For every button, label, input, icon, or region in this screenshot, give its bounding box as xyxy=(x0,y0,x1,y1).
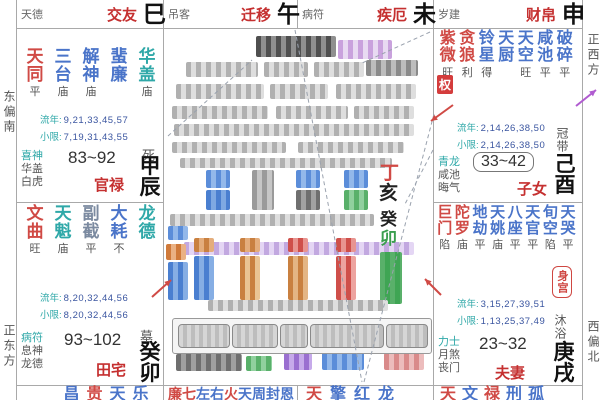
clipped-star-char: 龙 xyxy=(374,385,398,400)
liunian-values: 9,21,33,45,57 xyxy=(64,115,129,126)
star-三台: 三台庙 xyxy=(49,48,77,99)
star-天魁: 天魁庙 xyxy=(49,205,77,256)
palace-name: 子女 xyxy=(517,178,547,199)
star-天官: 天官平 xyxy=(524,205,542,252)
clipped-star-char: 贵 xyxy=(83,385,106,400)
grid-line xyxy=(163,0,164,400)
star-龙德: 龙德 xyxy=(133,205,161,256)
pillar-char: 丁 xyxy=(380,164,399,183)
star-list: 巨门陷陀罗庙地劫平天姚庙八座平天官平旬空陷天哭平 xyxy=(433,202,578,252)
star-旬空: 旬空陷 xyxy=(542,205,560,252)
redacted-block xyxy=(186,62,258,77)
decade-range: 93~102 xyxy=(64,330,121,350)
redacted-block xyxy=(166,244,186,260)
decade-range: 83~92 xyxy=(68,148,116,168)
redacted-block xyxy=(246,356,272,371)
clipped-star-char: 昌 xyxy=(60,385,83,400)
palace-footer-si-jiaoyou[interactable]: 天德 交友 巳 xyxy=(16,0,169,28)
ziwei-chart: 东偏南 正东方 正西方 西偏北 天德 交友 巳 吊客 迁移 午 病符 疾厄 未 … xyxy=(0,0,600,400)
palace-top-hai[interactable]: 天文禄刑孤 xyxy=(433,385,582,400)
xiaoxian-values: 1,13,25,37,49 xyxy=(481,316,546,327)
liunian-label: 流年: xyxy=(457,299,479,310)
liunian-values: 2,14,26,38,50 xyxy=(481,123,546,134)
clipped-star-char: 红 xyxy=(350,385,374,400)
toolbar-button-redacted[interactable] xyxy=(178,324,230,348)
clipped-star-char: 廉 xyxy=(168,385,182,400)
decade-range-current[interactable]: 33~42 xyxy=(473,152,534,172)
suijian-star: 病符 xyxy=(300,6,377,22)
liunian-label: 流年: xyxy=(40,293,62,304)
redacted-block xyxy=(256,36,336,57)
star-list: 天同平三台庙解神庙蜚廉华盖庙 xyxy=(16,28,163,99)
center-toolbar xyxy=(172,318,432,354)
xiaoxian-values: 8,20,32,44,56 xyxy=(64,310,129,321)
compass-west-north: 西偏北 xyxy=(585,320,600,365)
xiaoxian-label: 小限: xyxy=(457,316,479,327)
clipped-star-char: 文 xyxy=(459,385,481,400)
stem-branch: 庚戌 xyxy=(552,342,576,384)
redacted-block xyxy=(338,40,392,59)
redacted-block xyxy=(288,238,308,252)
palace-guanlu-jiachen[interactable]: 天同平三台庙解神庙蜚廉华盖庙 流年:9,21,33,45,57 小限:7,19,… xyxy=(16,28,163,202)
redacted-block xyxy=(276,106,348,119)
liunian-label: 流年: xyxy=(457,123,479,134)
redacted-block xyxy=(168,262,188,300)
clipped-star-char: 右 xyxy=(210,385,224,400)
shensha-list: 喜神 华盖 白虎 xyxy=(21,150,43,189)
grid-line xyxy=(582,0,583,400)
changsheng-stage: 冠带 xyxy=(554,127,571,153)
clipped-star-char: 乐 xyxy=(129,385,152,400)
redacted-block xyxy=(174,124,414,136)
clipped-star-char: 天 xyxy=(106,385,129,400)
pillar-char: 癸 xyxy=(380,211,397,228)
palace-footer-shen-caibo[interactable]: 岁建 财帛 申 xyxy=(433,0,598,28)
xiaoxian-values: 2,14,26,38,50 xyxy=(481,140,546,151)
clipped-star-char: 天 xyxy=(302,385,326,400)
clipped-star-char: 七 xyxy=(182,385,196,400)
redacted-block xyxy=(344,190,368,210)
clipped-star-char: 火 xyxy=(224,385,238,400)
star-贪狼: 贪狼利 xyxy=(458,31,478,80)
suijian-star: 天德 xyxy=(19,6,107,22)
redacted-block xyxy=(180,158,392,168)
liunian-label: 流年: xyxy=(40,115,62,126)
redacted-block xyxy=(354,106,414,119)
palace-name: 官禄 xyxy=(94,174,124,195)
redacted-block xyxy=(336,238,356,252)
star-八座: 八座平 xyxy=(506,205,524,252)
redacted-block xyxy=(314,62,364,77)
shensha-list: 青龙 咸池 晦气 xyxy=(438,156,460,195)
star-地劫: 地劫平 xyxy=(471,205,489,252)
palace-name: 迁移 xyxy=(241,4,271,25)
redacted-block xyxy=(168,226,188,240)
pillar-char: 亥 xyxy=(379,184,398,203)
toolbar-button-redacted[interactable] xyxy=(310,324,384,348)
hua-quan-badge: 权 xyxy=(437,75,453,94)
yearly-lines: 流年:3,15,27,39,51 小限:1,13,25,37,49 xyxy=(457,296,545,330)
redacted-block xyxy=(194,238,214,252)
redacted-block xyxy=(344,170,368,188)
star-天同: 天同平 xyxy=(21,48,49,99)
redacted-block xyxy=(172,106,268,119)
star-蜚廉: 蜚廉 xyxy=(105,48,133,99)
redacted-block xyxy=(176,84,264,99)
palace-name: 田宅 xyxy=(96,359,126,380)
palace-top-zi[interactable]: 天擎红龙 xyxy=(297,385,438,400)
star-天姚: 天姚庙 xyxy=(489,205,507,252)
star-咸池: 咸池平 xyxy=(536,31,556,80)
redacted-block xyxy=(170,214,374,226)
clipped-star-char: 孤 xyxy=(525,385,547,400)
changsheng-stage: 沐浴 xyxy=(552,314,569,340)
yearly-lines: 流年:9,21,33,45,57 小限:7,19,31,43,55 xyxy=(40,112,128,146)
liunian-values: 3,15,27,39,51 xyxy=(481,299,546,310)
clipped-star-char: 禄 xyxy=(481,385,503,400)
redacted-block xyxy=(298,142,404,153)
palace-name: 财帛 xyxy=(526,4,556,25)
star-华盖: 华盖庙 xyxy=(133,48,161,99)
yearly-lines: 流年:2,14,26,38,50 小限:2,14,26,38,50 xyxy=(457,120,545,154)
shensha-list: 病符 息神 龙德 xyxy=(21,332,43,371)
redacted-block xyxy=(176,354,242,371)
branch-label: 申 xyxy=(562,1,585,27)
shensha-list: 力士 月煞 丧门 xyxy=(438,336,460,375)
star-文曲: 文曲旺 xyxy=(21,205,49,256)
stem-branch: 甲辰 xyxy=(138,156,162,198)
redacted-block xyxy=(206,170,230,188)
redacted-block xyxy=(206,190,230,210)
liunian-values: 8,20,32,44,56 xyxy=(64,293,129,304)
clipped-star-char: 刑 xyxy=(503,385,525,400)
star-list: 紫微旺贪狼利铃星得天厨天空旺咸池平破碎平 xyxy=(433,28,578,80)
stem-branch: 癸卯 xyxy=(138,342,162,384)
palace-tianzhai-guimao[interactable]: 文曲旺天魁庙副截平大耗不龙德 流年:8,20,32,44,56 小限:8,20,… xyxy=(16,202,163,385)
xiaoxian-label: 小限: xyxy=(40,310,62,321)
compass-due-west: 正西方 xyxy=(585,33,600,78)
redacted-block xyxy=(270,84,328,99)
star-副截: 副截平 xyxy=(77,205,105,256)
palace-name: 夫妻 xyxy=(495,362,525,383)
star-list: 文曲旺天魁庙副截平大耗不龙德 xyxy=(16,202,163,256)
palace-footer-wu-qianyi[interactable]: 吊客 迁移 午 xyxy=(163,0,303,28)
redacted-block xyxy=(284,353,312,370)
palace-top-chou[interactable]: 廉七左右火天周封恩 xyxy=(163,385,302,400)
suijian-star: 岁建 xyxy=(436,6,526,22)
yearly-lines: 流年:8,20,32,44,56 小限:8,20,32,44,56 xyxy=(40,290,128,324)
clipped-star-char: 恩 xyxy=(280,385,294,400)
redacted-block xyxy=(296,170,320,188)
decade-range: 23~32 xyxy=(479,334,527,354)
xiaoxian-label: 小限: xyxy=(40,132,62,143)
star-巨门: 巨门陷 xyxy=(436,205,454,252)
xiaoxian-label: 小限: xyxy=(457,140,479,151)
redacted-block xyxy=(336,84,416,99)
stem-branch: 己酉 xyxy=(553,154,577,196)
star-天空: 天空旺 xyxy=(516,31,536,80)
palace-zinv-jiyou[interactable]: 紫微旺贪狼利铃星得天厨天空旺咸池平破碎平 权 流年:2,14,26,38,50 … xyxy=(433,28,578,202)
palace-name: 疾厄 xyxy=(377,4,407,25)
redacted-block xyxy=(336,256,356,300)
redacted-block xyxy=(208,300,388,311)
palace-fuqi-gengxu[interactable]: 巨门陷陀罗庙地劫平天姚庙八座平天官平旬空陷天哭平 流年:3,15,27,39,5… xyxy=(433,202,578,385)
redacted-block xyxy=(240,238,260,252)
clipped-star-char: 天 xyxy=(238,385,252,400)
clipped-star-char: 封 xyxy=(266,385,280,400)
star-天哭: 天哭平 xyxy=(559,205,577,252)
clipped-star-char: 擎 xyxy=(326,385,350,400)
clipped-star-char: 左 xyxy=(196,385,210,400)
suijian-star: 吊客 xyxy=(166,6,241,22)
star-解神: 解神庙 xyxy=(77,48,105,99)
toolbar-button-redacted[interactable] xyxy=(232,324,278,348)
star-天厨: 天厨 xyxy=(497,31,517,80)
body-palace-badge: 身宫 xyxy=(552,266,572,298)
redacted-block xyxy=(172,142,286,153)
redacted-block xyxy=(252,170,274,210)
xiaoxian-values: 7,19,31,43,55 xyxy=(64,132,129,143)
redacted-block xyxy=(240,256,260,300)
star-紫微: 紫微旺 xyxy=(438,31,458,80)
redacted-block xyxy=(264,62,308,77)
redacted-block xyxy=(296,190,320,210)
star-破碎: 破碎平 xyxy=(555,31,575,80)
star-铃星: 铃星得 xyxy=(477,31,497,80)
palace-name: 交友 xyxy=(107,4,137,25)
redacted-block xyxy=(366,60,418,76)
toolbar-button-redacted[interactable] xyxy=(386,324,428,348)
pillar-char: 卯 xyxy=(380,230,397,247)
star-大耗: 大耗不 xyxy=(105,205,133,256)
palace-footer-wei-jie[interactable]: 病符 疾厄 未 xyxy=(297,0,451,28)
redacted-block xyxy=(380,252,402,304)
toolbar-button-redacted[interactable] xyxy=(280,324,308,348)
redacted-block xyxy=(194,256,214,300)
star-陀罗: 陀罗庙 xyxy=(454,205,472,252)
clipped-star-char: 天 xyxy=(437,385,459,400)
redacted-block xyxy=(384,353,424,370)
redacted-block xyxy=(288,256,308,300)
clipped-star-char: 周 xyxy=(252,385,266,400)
